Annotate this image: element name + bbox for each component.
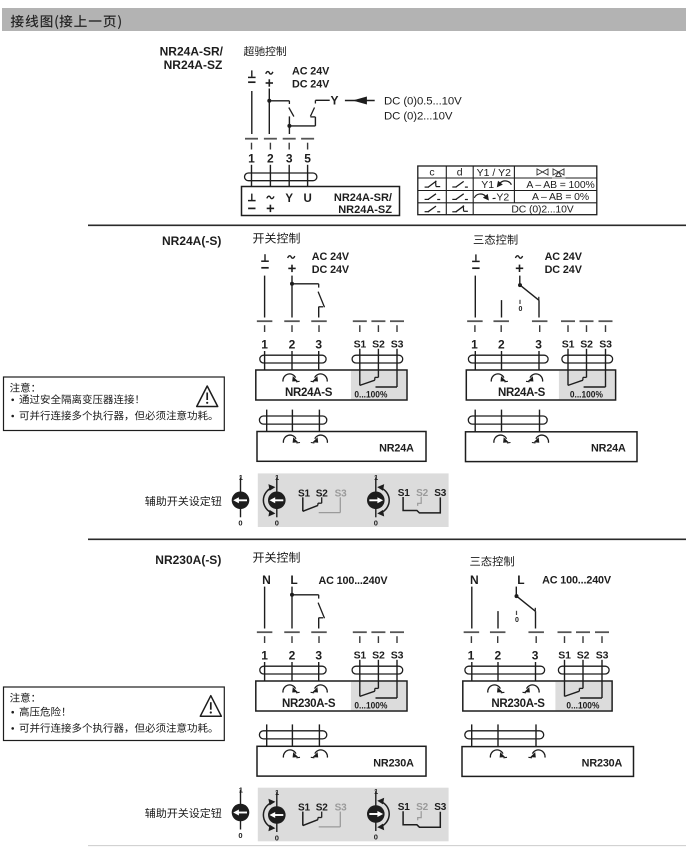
svg-text:2: 2 xyxy=(289,649,296,663)
svg-text:AC 100...240V: AC 100...240V xyxy=(542,574,612,586)
svg-text:0: 0 xyxy=(238,831,242,840)
svg-text:DC (0)2...10V: DC (0)2...10V xyxy=(384,110,453,122)
svg-text:DC 24V: DC 24V xyxy=(312,264,350,276)
svg-text:c: c xyxy=(429,167,434,179)
svg-text:Y1 / Y2: Y1 / Y2 xyxy=(477,167,511,179)
svg-text:1: 1 xyxy=(468,649,475,663)
svg-text:S1: S1 xyxy=(354,338,367,350)
svg-text:1: 1 xyxy=(261,338,268,352)
svg-text:2: 2 xyxy=(267,151,274,165)
svg-text:NR230A: NR230A xyxy=(373,758,414,770)
svg-text:NR24A: NR24A xyxy=(591,443,626,455)
svg-text:1: 1 xyxy=(275,473,279,482)
svg-text:NR24A: NR24A xyxy=(379,443,414,455)
svg-text:NR24A-S: NR24A-S xyxy=(498,387,546,399)
svg-text:AC 100...240V: AC 100...240V xyxy=(319,575,389,587)
svg-text:2: 2 xyxy=(498,338,505,352)
svg-text:U: U xyxy=(303,193,311,205)
svg-text:S3: S3 xyxy=(391,649,404,661)
svg-text:NR230A: NR230A xyxy=(582,758,623,770)
svg-text:S1: S1 xyxy=(298,488,310,499)
svg-text:3: 3 xyxy=(315,649,322,663)
svg-text:NR24A-SR/: NR24A-SR/ xyxy=(160,44,224,58)
svg-text:S3: S3 xyxy=(434,488,446,499)
svg-text:3: 3 xyxy=(535,338,542,352)
svg-text:S2: S2 xyxy=(416,802,428,813)
svg-text:0...100%: 0...100% xyxy=(354,700,387,711)
svg-text:1: 1 xyxy=(275,788,279,797)
svg-text:2: 2 xyxy=(494,649,501,663)
svg-text:AC 24V: AC 24V xyxy=(312,251,350,263)
svg-text:S1: S1 xyxy=(398,802,410,813)
svg-text:DC 24V: DC 24V xyxy=(545,264,583,276)
svg-text:S1: S1 xyxy=(354,649,367,661)
svg-text:0: 0 xyxy=(374,832,378,841)
svg-text:S2: S2 xyxy=(580,338,593,350)
svg-text:1: 1 xyxy=(239,473,243,482)
svg-text:N: N xyxy=(470,573,479,587)
svg-text:NR24A-S: NR24A-S xyxy=(285,387,333,399)
svg-text:0: 0 xyxy=(515,617,519,624)
svg-text:0: 0 xyxy=(519,306,523,313)
svg-text:3: 3 xyxy=(532,649,539,663)
svg-text:N: N xyxy=(262,573,271,587)
svg-text:d: d xyxy=(457,167,463,179)
svg-text:DC (0)0.5...10V: DC (0)0.5...10V xyxy=(384,95,462,107)
svg-text:0...100%: 0...100% xyxy=(566,700,599,711)
svg-text:Y: Y xyxy=(285,193,293,205)
svg-text:NR230A-S: NR230A-S xyxy=(282,698,336,710)
svg-text:S3: S3 xyxy=(434,802,446,813)
svg-text:NR230A(-S): NR230A(-S) xyxy=(155,553,221,567)
svg-text:1: 1 xyxy=(248,151,255,165)
svg-text:S3: S3 xyxy=(596,649,609,661)
svg-text:S3: S3 xyxy=(599,338,612,350)
svg-text:AC 24V: AC 24V xyxy=(545,251,583,263)
svg-text:DC 24V: DC 24V xyxy=(292,79,330,91)
svg-text:S2: S2 xyxy=(416,488,428,499)
svg-text:0: 0 xyxy=(374,519,378,528)
svg-text:S1: S1 xyxy=(562,338,575,350)
svg-text:1: 1 xyxy=(471,338,478,352)
svg-text:S2: S2 xyxy=(372,649,385,661)
svg-text:AC 24V: AC 24V xyxy=(292,66,330,78)
svg-text:NR24A-SZ: NR24A-SZ xyxy=(164,58,223,72)
svg-text:NR24A(-S): NR24A(-S) xyxy=(162,234,221,248)
svg-text:Y1: Y1 xyxy=(481,179,494,191)
svg-text:S1: S1 xyxy=(558,649,571,661)
svg-text:NR24A-SZ: NR24A-SZ xyxy=(338,204,392,216)
svg-text:S3: S3 xyxy=(391,338,404,350)
svg-text:NR24A-SR/: NR24A-SR/ xyxy=(334,192,392,204)
svg-text:1: 1 xyxy=(374,473,378,482)
svg-text:S2: S2 xyxy=(577,649,590,661)
svg-text:NR230A-S: NR230A-S xyxy=(491,698,545,710)
svg-text:1: 1 xyxy=(239,785,243,794)
svg-text:3: 3 xyxy=(286,151,293,165)
svg-text:Y2: Y2 xyxy=(496,192,509,204)
svg-text:2: 2 xyxy=(289,338,296,352)
svg-text:0...100%: 0...100% xyxy=(354,389,387,400)
svg-text:5: 5 xyxy=(304,151,311,165)
svg-text:Y: Y xyxy=(331,94,339,108)
svg-text:3: 3 xyxy=(315,338,322,352)
svg-text:S1: S1 xyxy=(398,488,410,499)
svg-text:L: L xyxy=(517,573,524,587)
svg-text:0: 0 xyxy=(238,519,242,528)
svg-text:A – AB = 0%: A – AB = 0% xyxy=(532,192,589,203)
svg-text:S1: S1 xyxy=(298,803,310,814)
svg-text:1: 1 xyxy=(261,649,268,663)
svg-text:0: 0 xyxy=(275,519,279,528)
svg-text:A – AB = 100%: A – AB = 100% xyxy=(526,180,594,191)
svg-text:0: 0 xyxy=(275,833,279,842)
svg-text:1: 1 xyxy=(374,787,378,796)
svg-text:S2: S2 xyxy=(372,338,385,350)
svg-text:DC (0)2...10V: DC (0)2...10V xyxy=(511,204,573,215)
svg-text:0...100%: 0...100% xyxy=(570,389,603,400)
svg-text:L: L xyxy=(290,573,297,587)
